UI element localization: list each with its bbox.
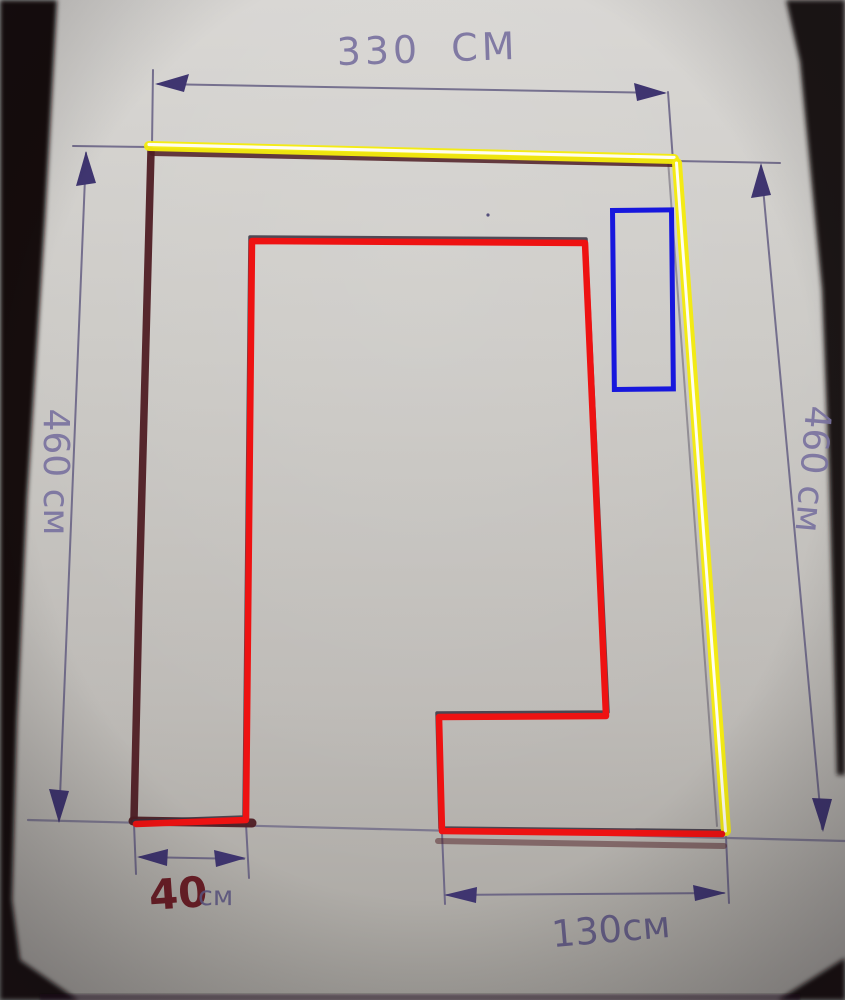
dim-label-left: 460 см <box>35 408 76 535</box>
background-bottom-band <box>40 994 800 1000</box>
sketch-canvas: 330 СМ 460 см 460 см 40 см 130см <box>0 0 845 1000</box>
dim-label-40-unit: см <box>198 881 233 912</box>
dim-label-top: 330 СМ <box>336 24 519 74</box>
stray-pen-dot <box>486 213 489 216</box>
left-dim-extension-top <box>73 146 150 147</box>
photo-of-sketch: 330 СМ 460 см 460 см 40 см 130см <box>0 0 845 1000</box>
top-dim-extension-left <box>152 70 153 146</box>
